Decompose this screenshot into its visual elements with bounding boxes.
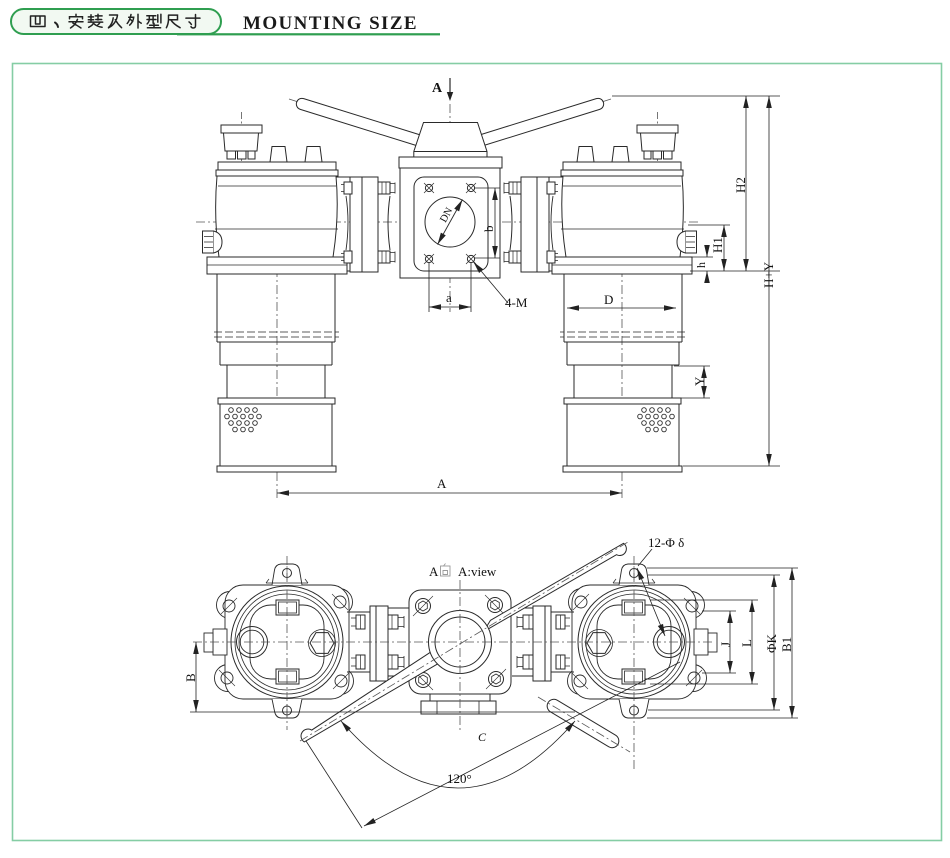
svg-text:MOUNTING SIZE: MOUNTING SIZE bbox=[243, 13, 418, 34]
svg-text:B: B bbox=[183, 673, 198, 682]
svg-text:H+Y: H+Y bbox=[761, 261, 776, 288]
svg-text:12-Φ δ: 12-Φ δ bbox=[648, 535, 684, 550]
svg-text:b: b bbox=[481, 226, 496, 233]
svg-text:4-M: 4-M bbox=[505, 295, 528, 310]
svg-text:B1: B1 bbox=[779, 637, 794, 652]
svg-text:A: A bbox=[437, 476, 447, 491]
svg-text:D: D bbox=[604, 292, 613, 307]
svg-text:A: A bbox=[429, 564, 439, 579]
svg-text:A:view: A:view bbox=[458, 564, 497, 579]
svg-text:J: J bbox=[718, 642, 733, 647]
svg-text:L: L bbox=[739, 639, 754, 647]
svg-text:a: a bbox=[446, 290, 452, 305]
svg-text:h: h bbox=[694, 262, 708, 268]
svg-text:120°: 120° bbox=[447, 771, 472, 786]
svg-text:C: C bbox=[478, 730, 487, 744]
svg-text:Y: Y bbox=[692, 376, 707, 386]
svg-text:ΦK: ΦK bbox=[764, 633, 779, 653]
svg-text:H1: H1 bbox=[710, 237, 725, 253]
svg-text:A: A bbox=[432, 81, 443, 96]
svg-text:H2: H2 bbox=[733, 177, 748, 193]
